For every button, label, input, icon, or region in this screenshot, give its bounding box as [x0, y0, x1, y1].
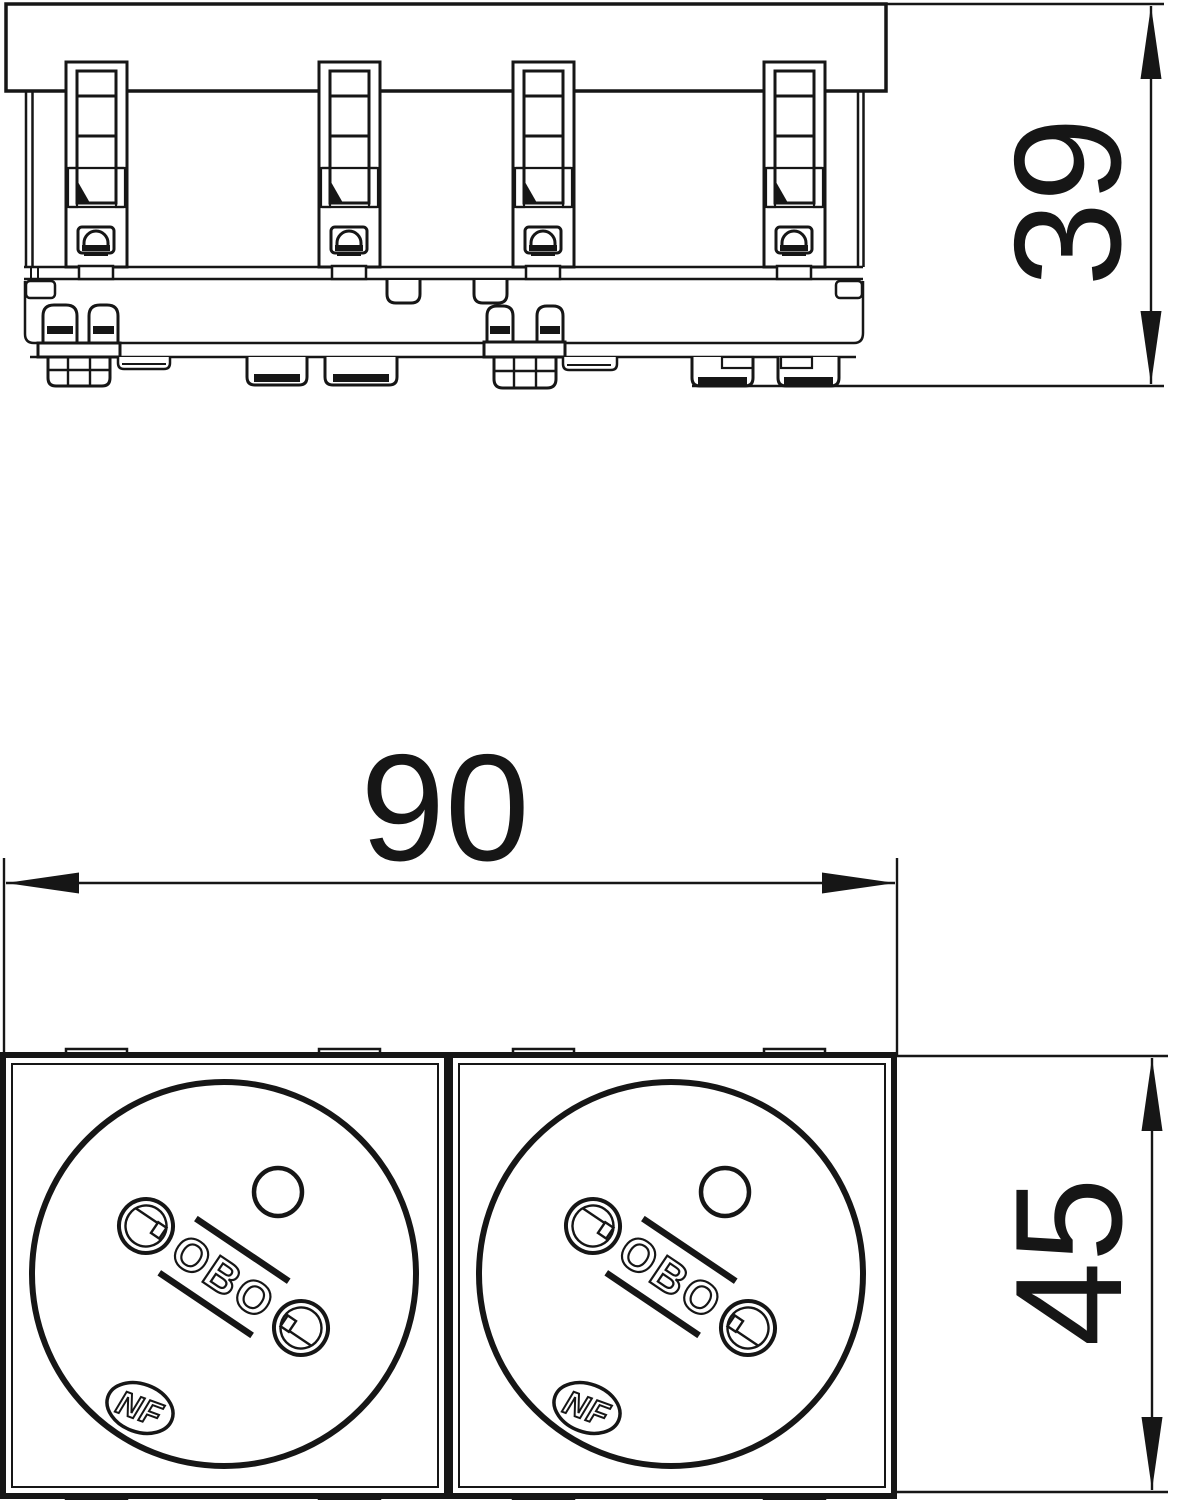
arrow-down-icon [1142, 1417, 1163, 1490]
arrow-right-icon [822, 873, 895, 894]
claw-clip [513, 62, 574, 267]
side-view [6, 4, 886, 388]
front-view: OBO NF OBO NF [3, 1049, 894, 1499]
dimension-width: 90 [4, 723, 897, 1057]
dimension-label-39: 39 [983, 117, 1153, 286]
arrow-up-icon [1141, 6, 1162, 79]
claw-clip [66, 62, 127, 267]
cover-plate [6, 4, 886, 91]
arrow-down-icon [1141, 311, 1162, 384]
terminal-screw-left [38, 305, 120, 386]
dimension-label-45: 45 [984, 1177, 1154, 1346]
claw-clip [764, 62, 825, 267]
arrow-left-icon [6, 873, 79, 894]
dimension-label-90: 90 [360, 723, 529, 893]
arrow-up-icon [1142, 1058, 1163, 1131]
terminal-screw-middle [484, 306, 565, 388]
technical-drawing-sheet: OBO NF OBO NF 39 90 [0, 0, 1183, 1500]
technical-drawing: OBO NF OBO NF 39 90 [0, 0, 1183, 1500]
dimension-front-height: 45 [893, 1056, 1168, 1492]
claw-clip [319, 62, 380, 267]
